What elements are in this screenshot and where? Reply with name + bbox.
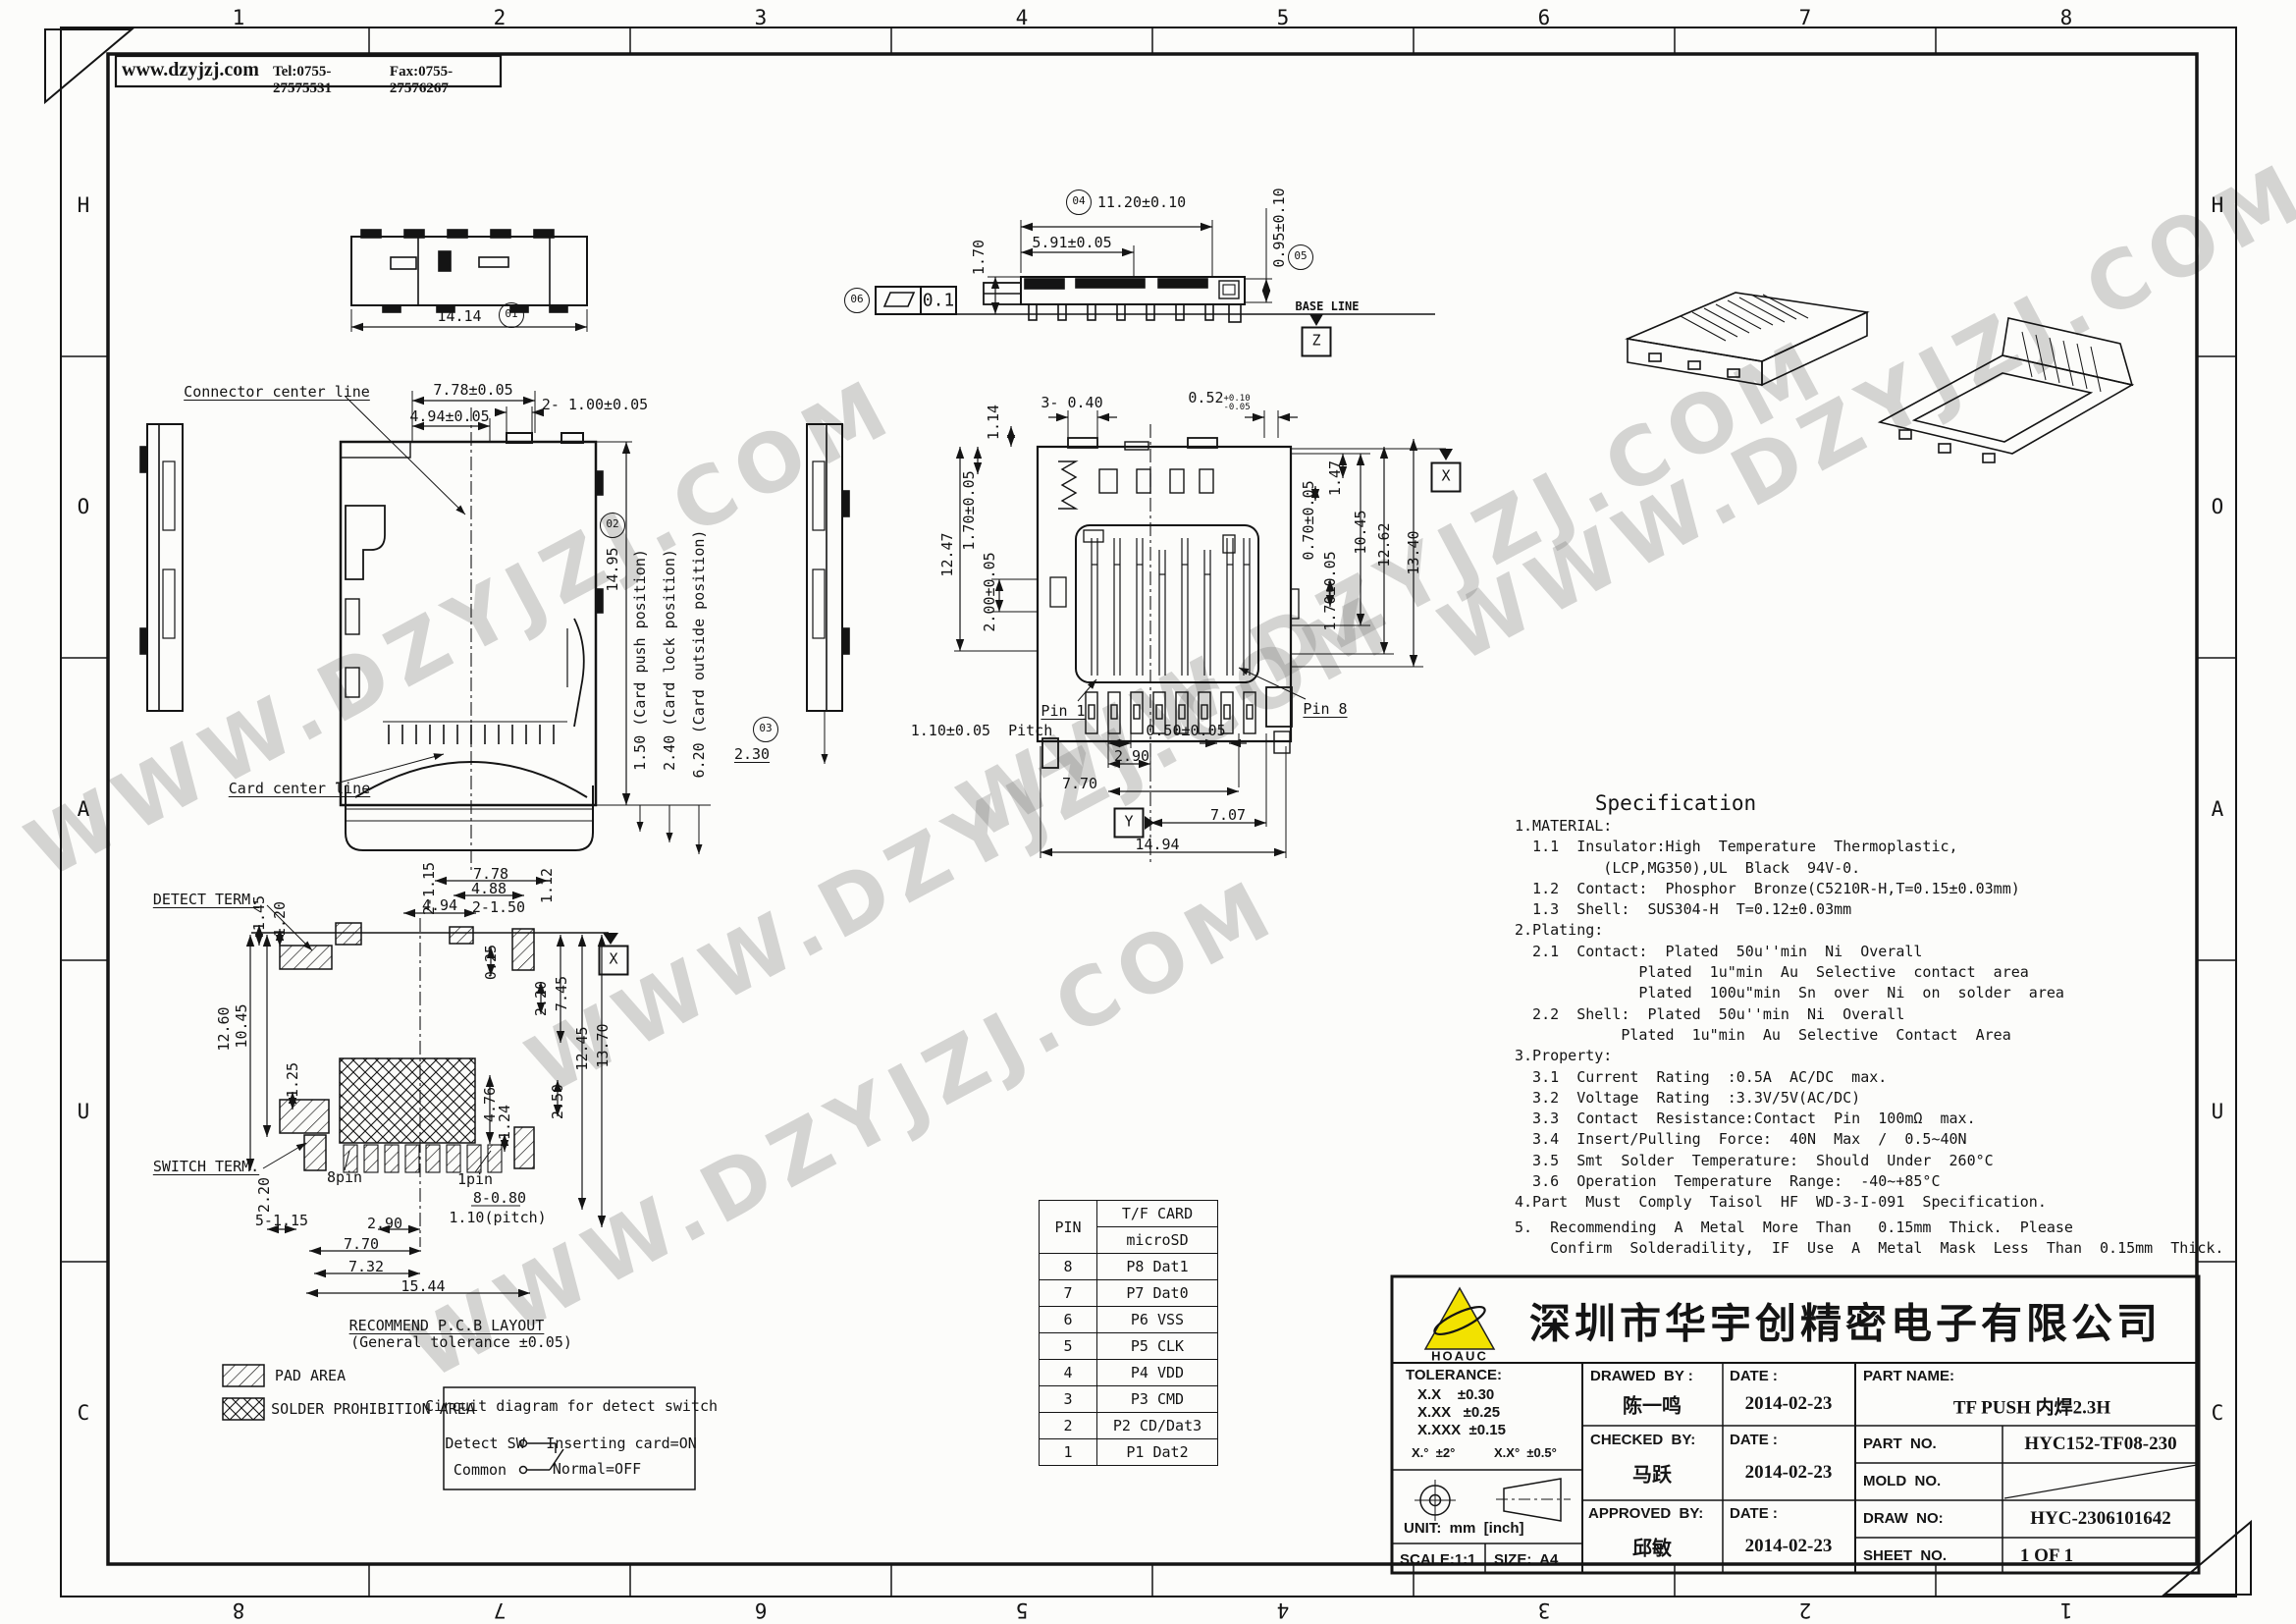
zone-col: 4 — [1016, 6, 1029, 29]
datum-z: Z — [1302, 327, 1332, 357]
flatness-value: 0.1 — [923, 291, 955, 311]
zone-col: 5 — [1277, 6, 1290, 29]
dim-290-mid: 2.90 — [1114, 747, 1149, 765]
zone-row: O — [78, 495, 90, 518]
checked-by-label: CHECKED BY: — [1590, 1432, 1695, 1448]
pin-signal: P5 CLK — [1097, 1333, 1218, 1360]
part-name-value: TF PUSH 内焊2.3H — [1953, 1393, 2110, 1420]
draw-no-label: DRAW NO: — [1863, 1510, 1944, 1527]
spec-line: 3.6 Operation Temperature Range: -40~+85… — [1515, 1171, 2223, 1192]
card-outside-position: 6.20 (Card outside position) — [690, 530, 708, 779]
dim-1495: 14.95 — [604, 547, 621, 591]
pin-signal: P3 CMD — [1097, 1386, 1218, 1413]
datum-y: Y — [1114, 808, 1145, 839]
pin-number: 8 — [1040, 1254, 1097, 1280]
tolerance-xxx: X.XX ±0.25 — [1417, 1404, 1500, 1421]
pin-signal: P1 Dat2 — [1097, 1439, 1218, 1466]
fax: Fax:0755-27576267 — [390, 64, 497, 97]
spec-line: 2.2 Shell: Plated 50u''min Ni Overall — [1515, 1004, 2223, 1025]
dim-050: 0.50±0.05 — [1146, 722, 1225, 739]
table-row: 5P5 CLK — [1040, 1333, 1218, 1360]
dim-147: 1.47 — [1326, 460, 1344, 496]
pcb-dim-1544: 15.44 — [400, 1277, 445, 1295]
tolerance-label: TOLERANCE: — [1406, 1367, 1502, 1383]
pcb-dim-1245: 12.45 — [573, 1026, 591, 1070]
pcb-dim-250: 2.50 — [549, 1084, 566, 1119]
iso-views-linework — [1628, 293, 2132, 462]
spec-line: 3.4 Insert/Pulling Force: 40N Max / 0.5~… — [1515, 1129, 2223, 1150]
pin-number: 4 — [1040, 1360, 1097, 1386]
dim-591: 5.91±0.05 — [1032, 234, 1111, 251]
legend-pad-area: PAD AREA — [275, 1367, 346, 1384]
zone-col: 6 — [1538, 6, 1551, 29]
zone-row: O — [2212, 495, 2224, 518]
date-1: 2014-02-23 — [1745, 1393, 1833, 1415]
dim-095: 0.95±0.10 — [1270, 188, 1288, 267]
pin8-label: Pin 8 — [1303, 700, 1347, 718]
datum-x-mid: X — [1431, 462, 1462, 493]
table-row: 8P8 Dat1 — [1040, 1254, 1218, 1280]
zone-col: 4 — [1277, 1598, 1290, 1622]
pin-signal: P6 VSS — [1097, 1307, 1218, 1333]
table-row: 6P6 VSS — [1040, 1307, 1218, 1333]
dim-1247: 12.47 — [938, 532, 956, 576]
sheet-no-value: 1 OF 1 — [2020, 1545, 2073, 1567]
spec-line: 1.1 Insulator:High Temperature Thermopla… — [1515, 837, 2223, 857]
spec-line: (LCP,MG350),UL Black 94V-0. — [1515, 858, 2223, 879]
pcb-dim-290: 2.90 — [367, 1215, 402, 1232]
balloon-01: 01 — [499, 302, 524, 328]
dim-230: 2.30 — [734, 745, 770, 763]
pin-signal: P4 VDD — [1097, 1360, 1218, 1386]
table-row: 3P3 CMD — [1040, 1386, 1218, 1413]
dim-707: 7.07 — [1210, 806, 1246, 824]
dim-1494: 14.94 — [1135, 836, 1179, 853]
connector-center-line-label: Connector center line — [184, 383, 370, 401]
dim-114: 1.14 — [985, 405, 1002, 440]
pcb-dim-1260: 12.60 — [215, 1006, 233, 1051]
dim-1414: 14.14 — [437, 307, 481, 325]
spec-line: 1.2 Contact: Phosphor Bronze(C5210R-H,T=… — [1515, 879, 2223, 899]
balloon-05: 05 — [1288, 244, 1313, 270]
spec-line: 3.2 Voltage Rating :3.3V/5V(AC/DC) — [1515, 1088, 2223, 1109]
dim-052-value: 0.52 — [1188, 389, 1223, 406]
zone-col: 3 — [755, 6, 768, 29]
pin-table-header-microsd: microSD — [1097, 1227, 1218, 1254]
pcb-dim-124: 1.24 — [496, 1105, 513, 1140]
pcb-8pin-label: 8pin — [327, 1168, 362, 1186]
pcb-dim-8x080: 8-0.80 — [473, 1189, 526, 1207]
detect-sw-label: Detect SW — [445, 1435, 524, 1452]
dim-2x100: 2- 1.00±0.05 — [542, 396, 648, 413]
pcb-1pin-label: 1pin — [457, 1170, 493, 1188]
part-no-value: HYC152-TF08-230 — [2024, 1434, 2176, 1455]
pcb-dim-2x115: 2-1.15 — [420, 862, 438, 915]
approved-by-name: 邱敏 — [1632, 1533, 1672, 1561]
dim-pitch: 1.10±0.05 Pitch — [911, 722, 1053, 739]
pcb-dim-745: 7.45 — [553, 976, 570, 1011]
dim-494-front: 4.94±0.05 — [409, 407, 489, 425]
pin-number: 7 — [1040, 1280, 1097, 1307]
table-row: 2P2 CD/Dat3 — [1040, 1413, 1218, 1439]
zone-row: C — [2212, 1401, 2224, 1425]
tolerance-angle1: X.° ±2° — [1412, 1445, 1455, 1460]
pcb-dim-488: 4.88 — [471, 880, 507, 897]
base-line-label: BASE LINE — [1295, 299, 1359, 313]
header-bar: www.dzyjzj.com Tel:0755-27575531 Fax:075… — [122, 59, 497, 97]
pin-signal: P7 Dat0 — [1097, 1280, 1218, 1307]
logo-text: HOAUC — [1431, 1349, 1488, 1364]
zone-col: 5 — [1016, 1598, 1029, 1622]
dim-170-section: 1.70 — [970, 240, 988, 275]
part-name-label: PART NAME: — [1863, 1368, 1954, 1384]
website: www.dzyjzj.com — [122, 59, 259, 81]
pcb-dim-1370: 13.70 — [594, 1023, 612, 1067]
balloon-06: 06 — [844, 288, 870, 313]
dim-200: 2.00±0.05 — [981, 552, 998, 631]
balloon-04: 04 — [1066, 189, 1092, 215]
tolerance-xx: X.X ±0.30 — [1417, 1386, 1494, 1403]
pin1-label: Pin 1 — [1041, 702, 1085, 720]
spec-line: Confirm Solderadility, IF Use A Metal Ma… — [1515, 1238, 2223, 1259]
checked-by-name: 马跃 — [1632, 1459, 1672, 1488]
pcb-dim-5x115: 5-1.15 — [255, 1212, 308, 1229]
drawed-by-name: 陈一鸣 — [1623, 1390, 1682, 1419]
pcb-dim-220a: 2.20 — [532, 981, 550, 1016]
drawing-sheet: WWW.DZYJZJ.COM WWW.DZYJZJ.COM WWW.DZYJZJ… — [0, 0, 2296, 1624]
pin-signal: P2 CD/Dat3 — [1097, 1413, 1218, 1439]
spec-line: 5. Recommending A Metal More Than 0.15mm… — [1515, 1218, 2223, 1238]
pin-signal: P8 Dat1 — [1097, 1254, 1218, 1280]
pcb-dim-1045: 10.45 — [233, 1003, 250, 1048]
pin-number: 6 — [1040, 1307, 1097, 1333]
dim-052: 0.52+0.10-0.05 — [1188, 389, 1250, 412]
spec-title: Specification — [1595, 791, 1756, 815]
dim-778-front: 7.78±0.05 — [433, 381, 512, 399]
telephone: Tel:0755-27575531 — [273, 64, 376, 97]
pcb-title: RECOMMEND P.C.B LAYOUT — [349, 1317, 545, 1334]
spec-line: 2.Plating: — [1515, 920, 2223, 941]
zone-col: 1 — [233, 6, 245, 29]
bottom-view-linework — [954, 410, 1453, 864]
detect-term-label: DETECT TERM. — [153, 891, 259, 908]
spec-line: 1.MATERIAL: — [1515, 816, 2223, 837]
normal-off-label: Normal=OFF — [553, 1460, 641, 1478]
date-label-1: DATE : — [1730, 1368, 1778, 1384]
zone-col: 3 — [1538, 1598, 1551, 1622]
mold-no-label: MOLD NO. — [1863, 1473, 1941, 1489]
pcb-dim-145: 1.45 — [250, 895, 268, 931]
spec-line: 3.Property: — [1515, 1046, 2223, 1066]
scale-label: SCALE:1:1 — [1400, 1551, 1476, 1568]
spec-line: 3.5 Smt Solder Temperature: Should Under… — [1515, 1151, 2223, 1171]
pcb-dim-pitch: 1.10(pitch) — [449, 1209, 546, 1226]
sheet-no-label: SHEET NO. — [1863, 1547, 1947, 1564]
zone-row: H — [78, 193, 90, 217]
pcb-dim-2x150: 2-1.50 — [472, 898, 525, 916]
dim-1120: 11.20±0.10 — [1097, 193, 1186, 211]
dim-1045-mid: 10.45 — [1352, 510, 1369, 554]
date-label-3: DATE : — [1730, 1505, 1778, 1522]
part-no-label: PART NO. — [1863, 1435, 1937, 1452]
pcb-dim-770: 7.70 — [344, 1235, 379, 1253]
pcb-dim-112: 1.12 — [538, 868, 556, 903]
dim-070: 0.70±0.05 — [1300, 480, 1317, 560]
drawed-by-label: DRAWED BY : — [1590, 1368, 1693, 1384]
zone-col: 2 — [1799, 1598, 1812, 1622]
side-views-linework — [140, 424, 849, 764]
table-row: 7P7 Dat0 — [1040, 1280, 1218, 1307]
circuit-diagram-title: Circuit diagram for detect switch — [425, 1397, 718, 1415]
front-view-linework — [336, 391, 711, 872]
table-row: 4P4 VDD — [1040, 1360, 1218, 1386]
dim-052-tol-dn: -0.05 — [1224, 404, 1251, 412]
card-lock-position: 2.40 (Card lock position) — [661, 549, 678, 771]
spec-line: 3.1 Current Rating :0.5A AC/DC max. — [1515, 1067, 2223, 1088]
size-label: SIZE: A4 — [1494, 1551, 1558, 1568]
approved-by-label: APPROVED BY: — [1588, 1505, 1703, 1522]
zone-row: U — [78, 1100, 90, 1123]
zone-col: 8 — [2060, 6, 2073, 29]
pin-table-header-pin: PIN — [1040, 1201, 1097, 1254]
pin-table: PIN T/F CARD microSD 8P8 Dat1 7P7 Dat0 6… — [1039, 1200, 1218, 1466]
spec-line: Plated 1u"min Au Selective contact area — [1515, 962, 2223, 983]
spec-line: Plated 1u"min Au Selective Contact Area — [1515, 1025, 2223, 1046]
pcb-subtitle: (General tolerance ±0.05) — [350, 1333, 572, 1351]
date-3: 2014-02-23 — [1745, 1536, 1833, 1557]
spec-line: 2.1 Contact: Plated 50u''min Ni Overall — [1515, 942, 2223, 962]
zone-row: H — [2212, 193, 2224, 217]
zone-col: 8 — [233, 1598, 245, 1622]
card-center-line-label: Card center line — [229, 780, 371, 797]
pcb-dim-732: 7.32 — [348, 1258, 384, 1275]
pin-number: 3 — [1040, 1386, 1097, 1413]
spec-line: 3.3 Contact Resistance:Contact Pin 100mΩ… — [1515, 1109, 2223, 1129]
date-label-2: DATE : — [1730, 1432, 1778, 1448]
pcb-dim-120: 1.20 — [271, 901, 289, 937]
dim-770-mid: 7.70 — [1062, 775, 1097, 792]
spec-line: 1.3 Shell: SUS304-H T=0.12±0.03mm — [1515, 899, 2223, 920]
pcb-dim-025: 0.25 — [482, 945, 500, 980]
datum-x-pcb: X — [599, 946, 629, 976]
spec-line: 4.Part Must Comply Taisol HF WD-3-I-091 … — [1515, 1192, 2223, 1213]
zone-row: C — [78, 1401, 90, 1425]
inserting-card-label: Inserting card=ON — [546, 1435, 697, 1452]
zone-col: 7 — [494, 1598, 507, 1622]
zone-col: 2 — [494, 6, 507, 29]
spec-line: Plated 100u"min Sn over Ni on solder are… — [1515, 983, 2223, 1003]
tolerance-xxxx: X.XXX ±0.15 — [1417, 1422, 1506, 1438]
pin-number: 5 — [1040, 1333, 1097, 1360]
tolerance-angle2: X.X° ±0.5° — [1494, 1445, 1557, 1460]
table-row: 1P1 Dat2 — [1040, 1439, 1218, 1466]
dim-170-right: 1.70±0.05 — [1321, 551, 1339, 630]
specification-block: 1.MATERIAL: 1.1 Insulator:High Temperatu… — [1515, 816, 2223, 1259]
balloon-02: 02 — [600, 513, 625, 538]
common-label: Common — [454, 1461, 507, 1479]
zone-col: 6 — [755, 1598, 768, 1622]
switch-term-label: SWITCH TERM. — [153, 1158, 259, 1175]
dim-3x040: 3- 0.40 — [1041, 394, 1102, 411]
company-name: 深圳市华宇创精密电子有限公司 — [1529, 1291, 2162, 1351]
zone-col: 1 — [2060, 1598, 2073, 1622]
draw-no-value: HYC-2306101642 — [2030, 1508, 2171, 1530]
balloon-03: 03 — [753, 717, 778, 742]
pcb-dim-220b: 2.20 — [255, 1177, 273, 1213]
card-push-position: 1.50 (Card push position) — [631, 549, 649, 771]
unit-label: UNIT: mm [inch] — [1404, 1520, 1524, 1537]
pcb-dim-125: 1.25 — [284, 1062, 301, 1098]
date-2: 2014-02-23 — [1745, 1462, 1833, 1484]
zone-col: 7 — [1799, 6, 1812, 29]
dim-1262: 12.62 — [1375, 522, 1393, 567]
zone-row: A — [78, 797, 90, 821]
pin-number: 1 — [1040, 1439, 1097, 1466]
dim-170-left: 1.70±0.05 — [960, 470, 978, 550]
pin-table-header-card: T/F CARD — [1097, 1201, 1218, 1227]
pin-number: 2 — [1040, 1413, 1097, 1439]
dim-1340: 13.40 — [1405, 530, 1422, 574]
